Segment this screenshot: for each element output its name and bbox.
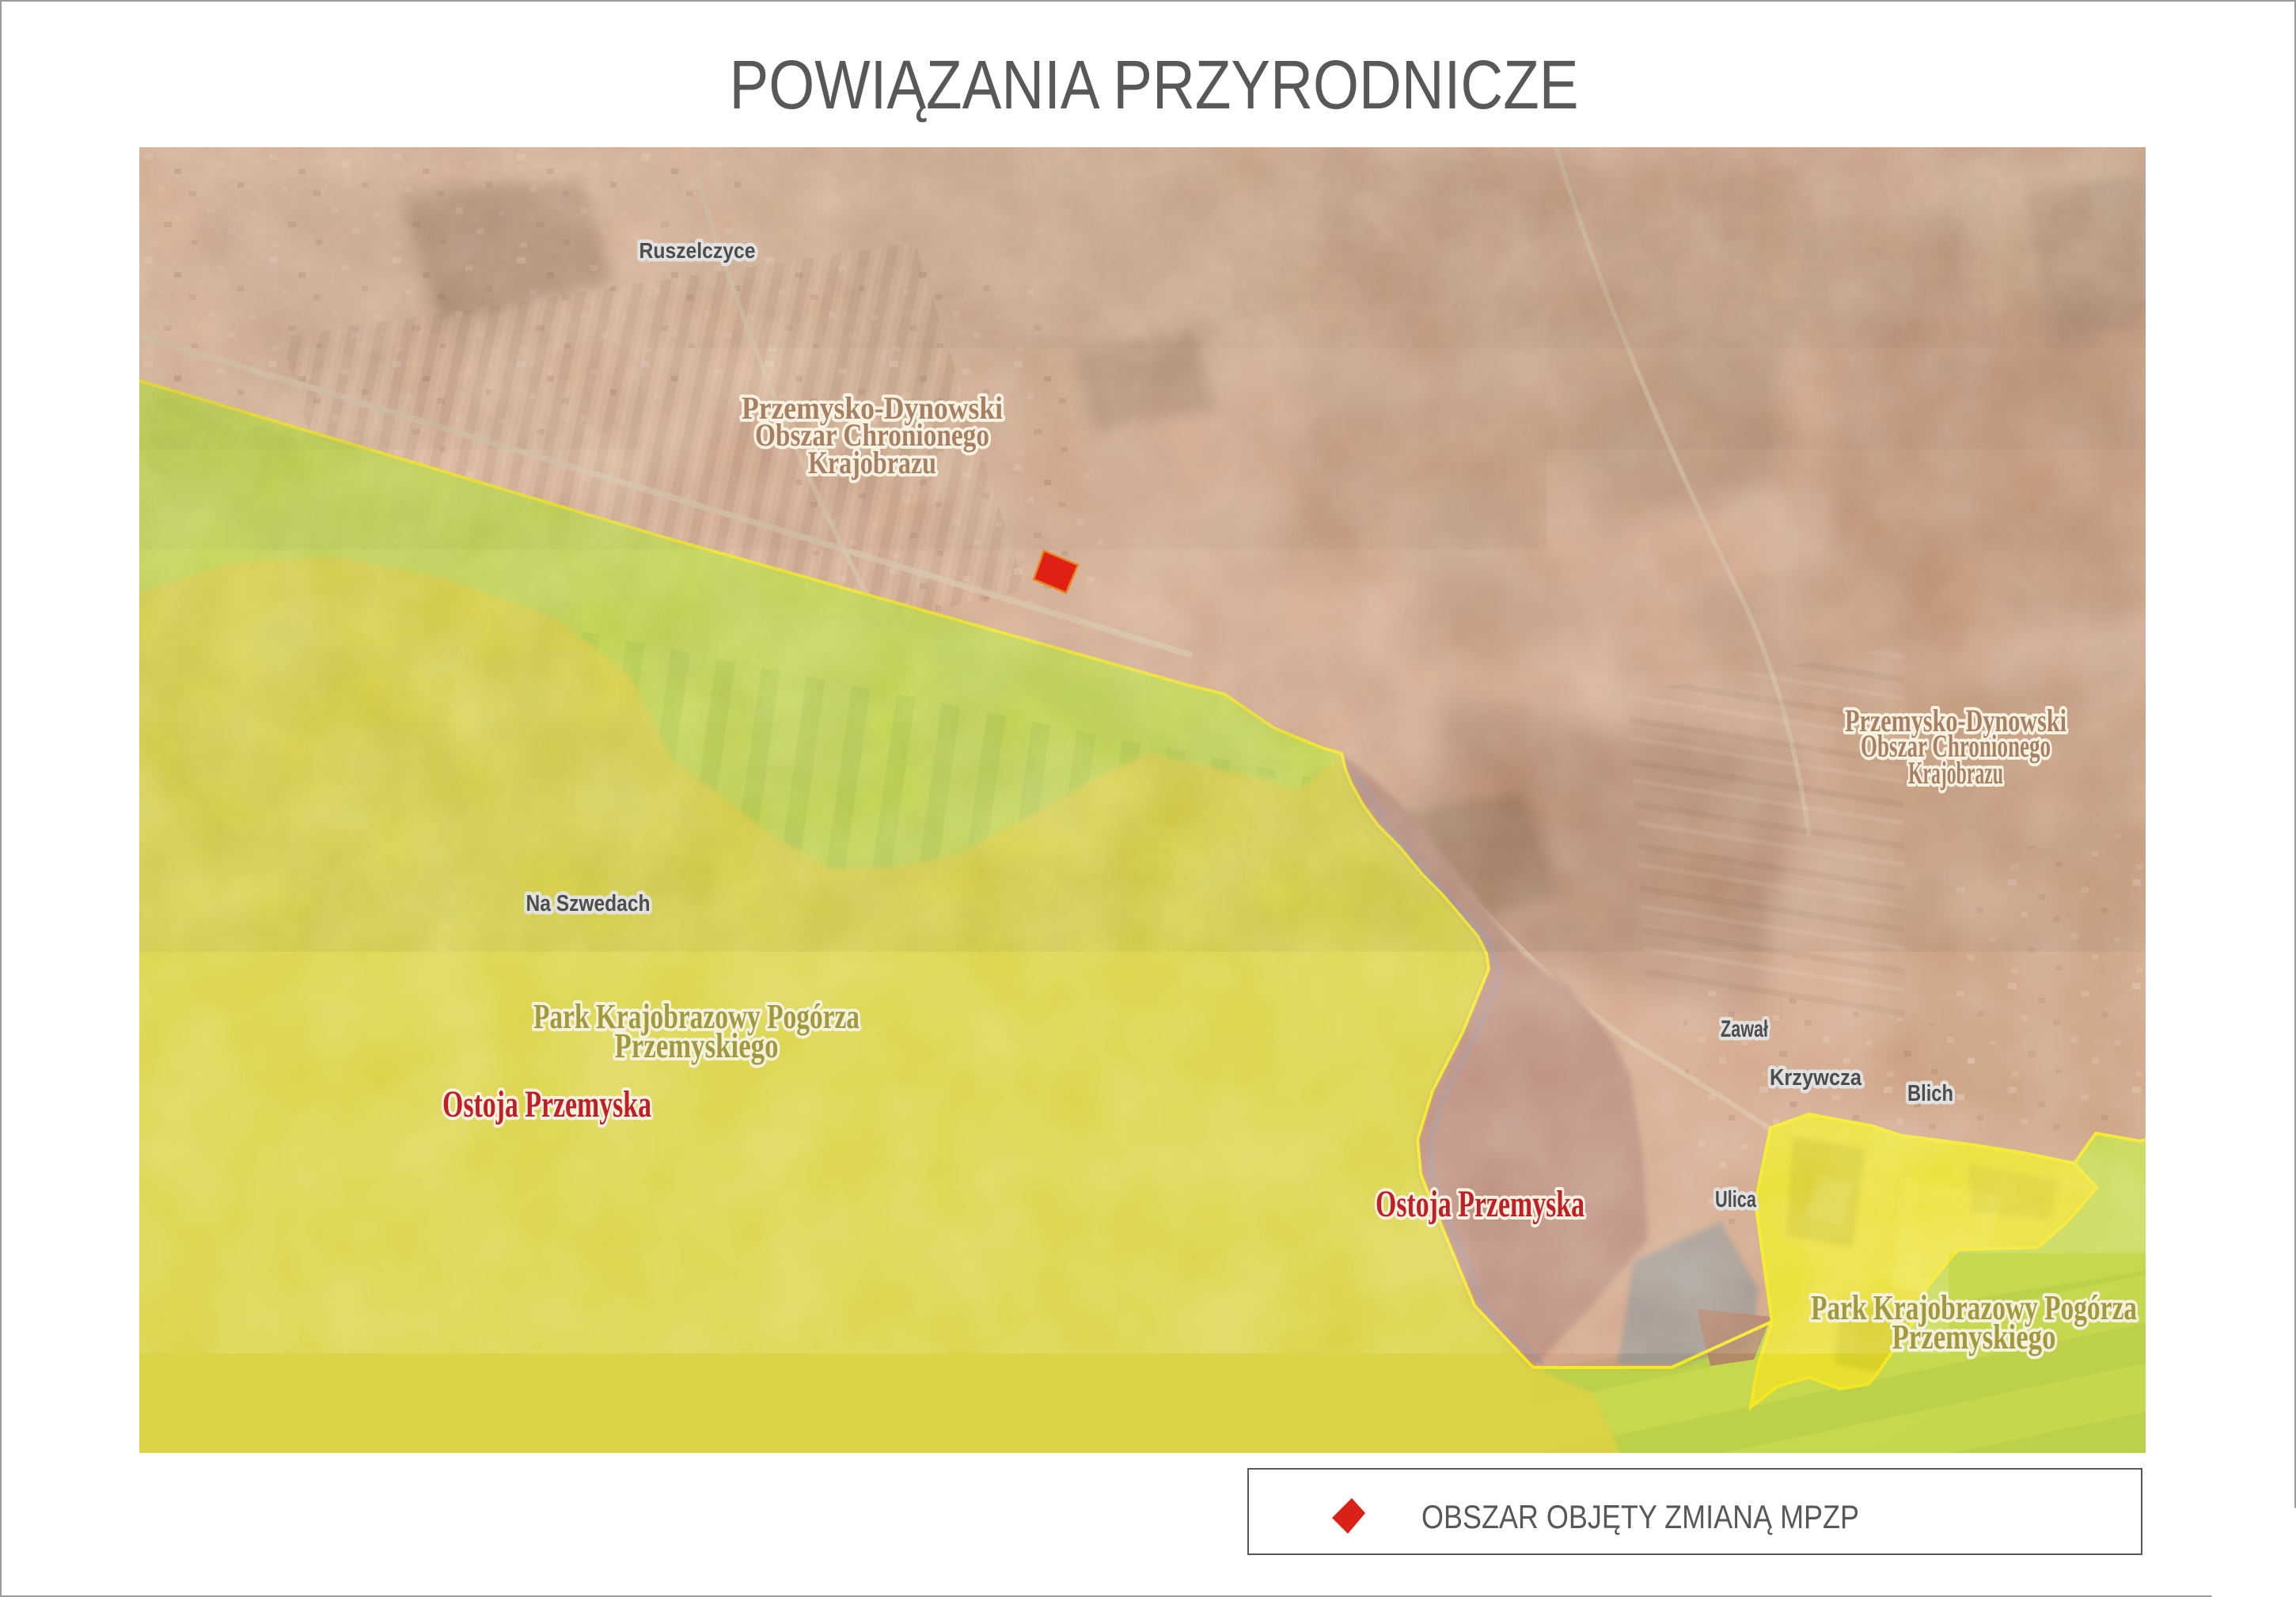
svg-text:Przemyskiego: Przemyskiego: [615, 1026, 779, 1065]
svg-text:Przemyskiego: Przemyskiego: [1892, 1318, 2056, 1356]
svg-text:Krzywcza: Krzywcza: [1770, 1065, 1862, 1091]
svg-text:Na Szwedach: Na Szwedach: [526, 891, 651, 916]
svg-text:POWIĄZANIA PRZYRODNICZE: POWIĄZANIA PRZYRODNICZE: [730, 47, 1579, 123]
svg-text:Krajobrazu: Krajobrazu: [1908, 755, 2003, 791]
svg-text:OBSZAR OBJĘTY ZMIANĄ MPZP: OBSZAR OBJĘTY ZMIANĄ MPZP: [1421, 1498, 1859, 1535]
svg-text:Ostoja Przemyska: Ostoja Przemyska: [442, 1083, 651, 1125]
svg-text:Ulica: Ulica: [1715, 1187, 1757, 1212]
svg-text:Krajobrazu: Krajobrazu: [808, 445, 936, 480]
svg-text:Zawał: Zawał: [1721, 1016, 1768, 1042]
svg-text:Ruszelczyce: Ruszelczyce: [639, 238, 756, 263]
svg-text:Ostoja Przemyska: Ostoja Przemyska: [1376, 1183, 1584, 1225]
svg-text:Blich: Blich: [1907, 1081, 1953, 1106]
